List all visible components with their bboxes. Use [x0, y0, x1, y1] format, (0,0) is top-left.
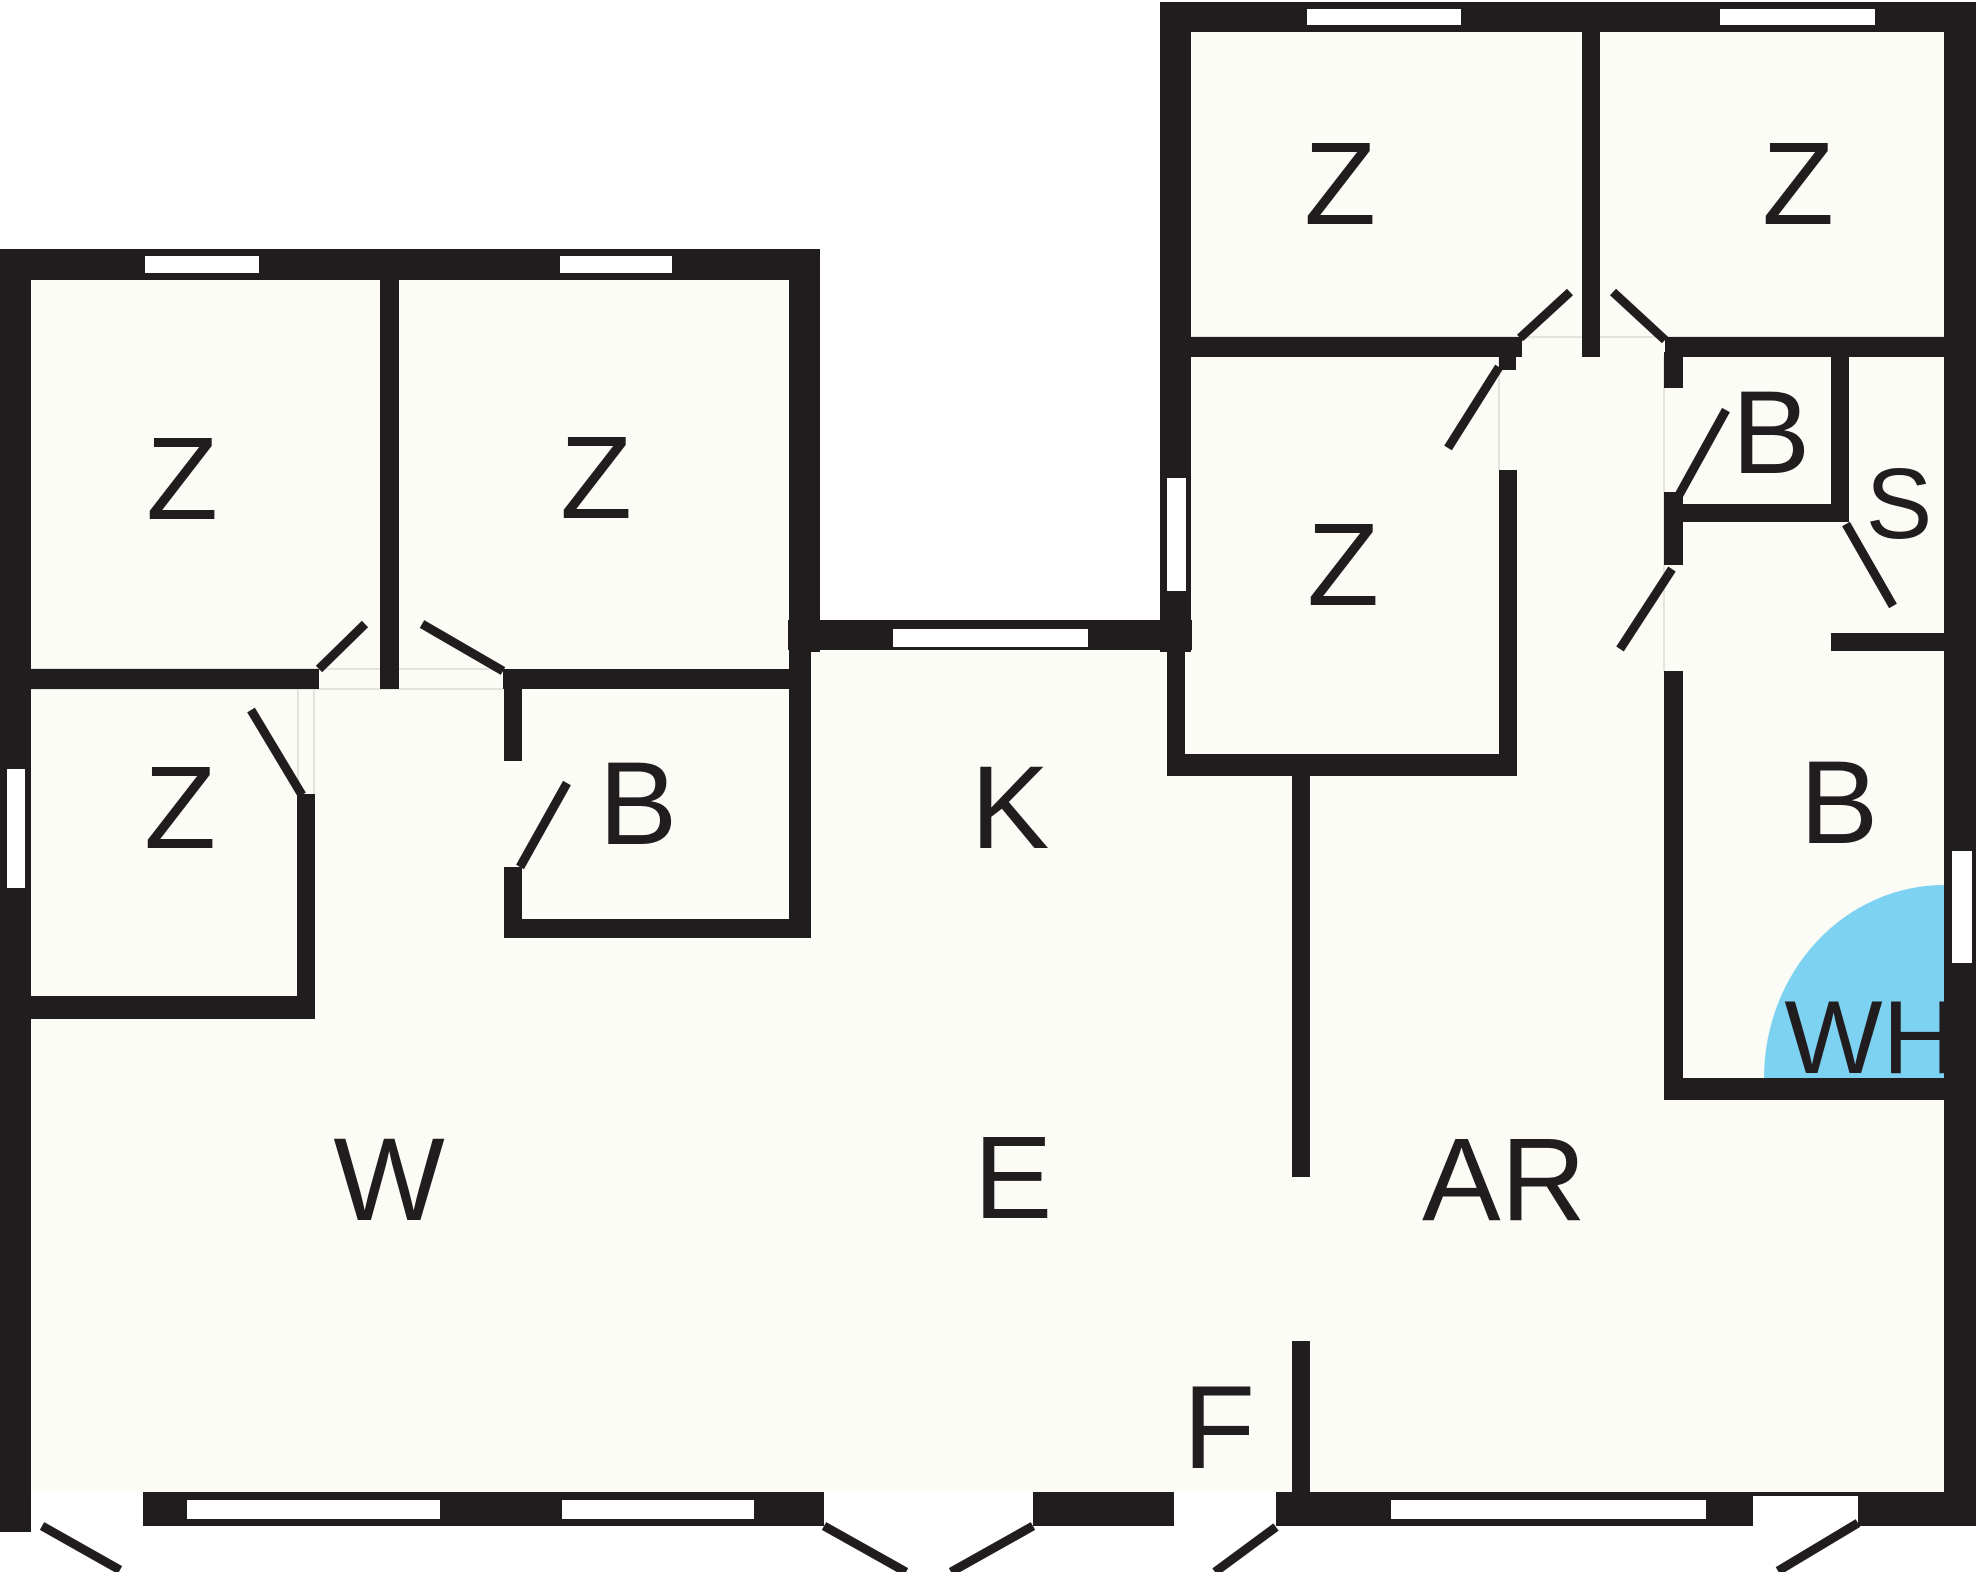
svg-text:B: B: [1732, 367, 1811, 499]
svg-text:B: B: [1800, 737, 1879, 869]
svg-text:S: S: [1866, 448, 1933, 560]
svg-text:AR: AR: [1422, 1114, 1586, 1246]
svg-text:W: W: [333, 1114, 444, 1246]
svg-text:Z: Z: [560, 412, 632, 544]
svg-text:Z: Z: [1307, 499, 1379, 631]
svg-text:Z: Z: [146, 413, 218, 545]
svg-text:F: F: [1183, 1362, 1255, 1494]
svg-text:Z: Z: [1304, 118, 1376, 250]
svg-text:Z: Z: [1762, 118, 1834, 250]
svg-text:K: K: [971, 742, 1050, 874]
svg-text:WH: WH: [1784, 980, 1957, 1096]
svg-text:E: E: [974, 1112, 1053, 1244]
svg-text:B: B: [599, 738, 678, 870]
svg-text:Z: Z: [144, 742, 216, 874]
